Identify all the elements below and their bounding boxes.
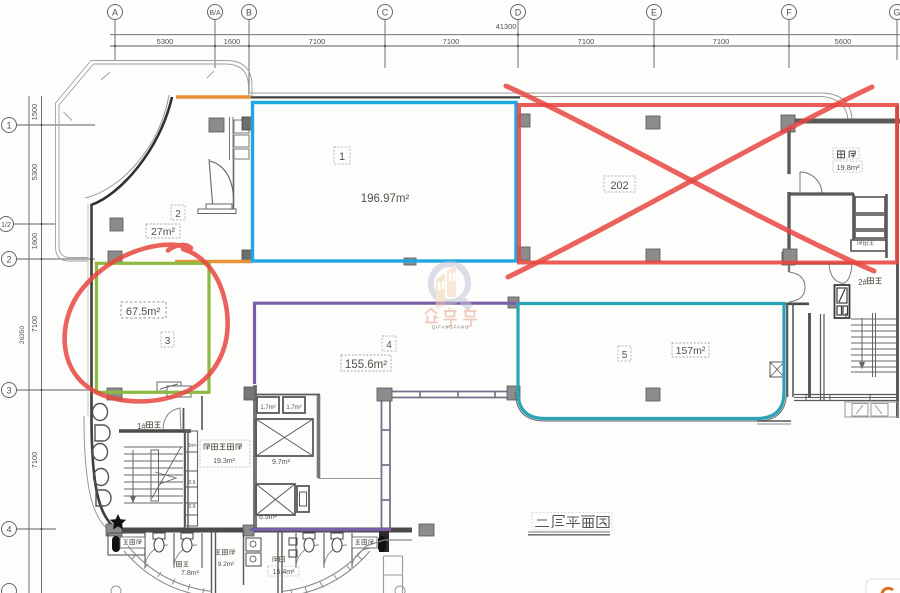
svg-text:1: 1 bbox=[339, 151, 345, 163]
svg-text:5300: 5300 bbox=[30, 164, 39, 181]
svg-text:7100: 7100 bbox=[30, 316, 39, 333]
svg-text:D: D bbox=[515, 8, 522, 18]
svg-text:G: G bbox=[893, 8, 900, 18]
svg-text:1: 1 bbox=[6, 121, 11, 131]
svg-text:1/2: 1/2 bbox=[1, 222, 11, 229]
svg-text:26350: 26350 bbox=[19, 326, 26, 344]
svg-text:0.9: 0.9 bbox=[189, 504, 196, 510]
svg-text:15.4m²: 15.4m² bbox=[273, 569, 295, 576]
svg-text:7.8m²: 7.8m² bbox=[181, 570, 200, 577]
svg-text:4: 4 bbox=[386, 340, 392, 351]
svg-text:A: A bbox=[112, 8, 118, 18]
svg-text:6.5m²: 6.5m² bbox=[259, 514, 278, 521]
svg-text:1.7m²: 1.7m² bbox=[286, 405, 301, 411]
svg-text:4: 4 bbox=[6, 525, 11, 535]
svg-text:27m²: 27m² bbox=[151, 226, 175, 238]
svg-text:5: 5 bbox=[622, 350, 628, 361]
svg-text:2#: 2# bbox=[858, 278, 867, 287]
svg-text:7100: 7100 bbox=[30, 452, 39, 469]
svg-text:7100: 7100 bbox=[713, 37, 730, 46]
svg-text:E: E bbox=[651, 8, 657, 18]
svg-text:B/A: B/A bbox=[209, 10, 221, 17]
svg-text:41300: 41300 bbox=[496, 22, 517, 31]
svg-text:QIFANGFANG: QIFANGFANG bbox=[432, 325, 469, 330]
svg-text:5300: 5300 bbox=[157, 37, 174, 46]
svg-text:0.9: 0.9 bbox=[189, 480, 196, 486]
svg-text:3: 3 bbox=[6, 386, 11, 396]
svg-text:19.8m²: 19.8m² bbox=[836, 163, 860, 172]
svg-text:19.3m²: 19.3m² bbox=[213, 458, 235, 465]
svg-text:1.7m²: 1.7m² bbox=[260, 405, 275, 411]
svg-text:1#: 1# bbox=[137, 422, 146, 431]
svg-text:7100: 7100 bbox=[309, 37, 326, 46]
svg-text:1m²: 1m² bbox=[188, 443, 197, 449]
svg-text:196.97m²: 196.97m² bbox=[361, 193, 410, 205]
svg-text:1600: 1600 bbox=[30, 233, 39, 250]
svg-text:157m²: 157m² bbox=[676, 345, 706, 357]
svg-text:1600: 1600 bbox=[224, 37, 241, 46]
svg-text:2: 2 bbox=[175, 209, 181, 220]
svg-text:5600: 5600 bbox=[835, 37, 852, 46]
svg-text:155.6m²: 155.6m² bbox=[345, 359, 387, 371]
svg-text:9.2m²: 9.2m² bbox=[218, 561, 235, 568]
svg-text:1500: 1500 bbox=[30, 104, 39, 121]
svg-text:202: 202 bbox=[610, 180, 628, 192]
svg-text:3: 3 bbox=[165, 336, 171, 347]
svg-text:C: C bbox=[382, 8, 389, 18]
svg-text:B: B bbox=[246, 8, 252, 18]
svg-text:F: F bbox=[786, 8, 792, 18]
svg-text:7100: 7100 bbox=[578, 37, 595, 46]
svg-text:7100: 7100 bbox=[443, 37, 460, 46]
svg-text:9.7m²: 9.7m² bbox=[272, 459, 291, 466]
svg-text:67.5m²: 67.5m² bbox=[126, 306, 161, 318]
svg-text:2: 2 bbox=[6, 255, 11, 265]
